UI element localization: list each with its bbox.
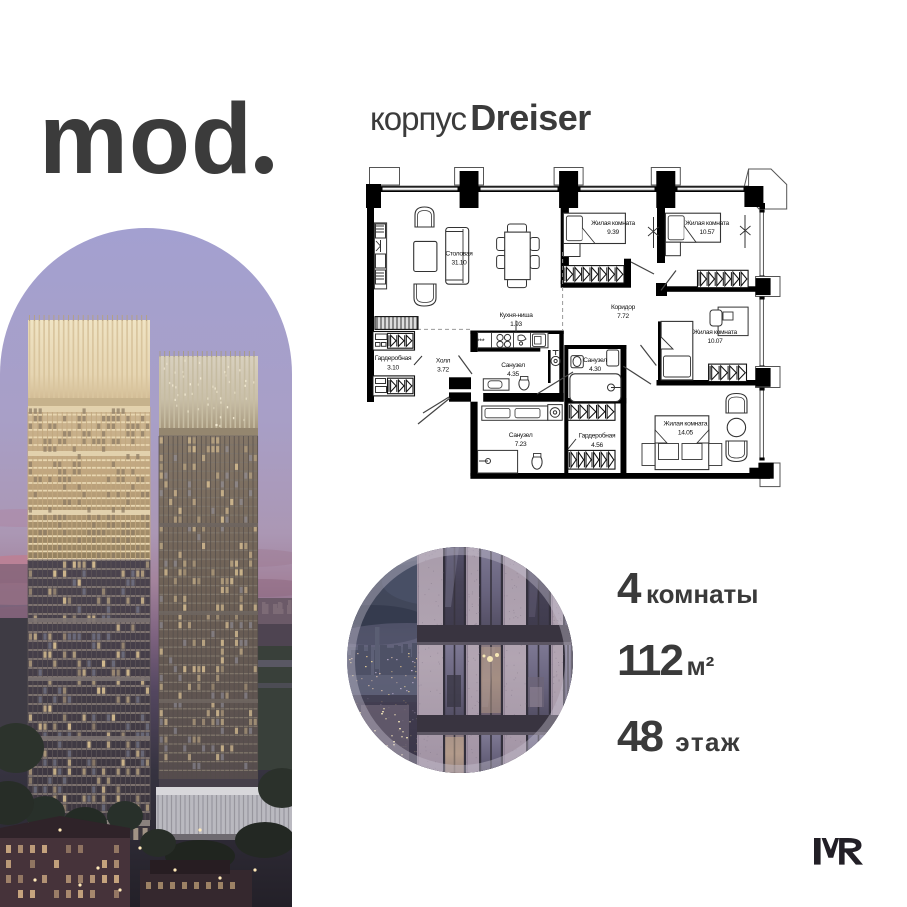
svg-text:Жилая комната: Жилая комната [664,421,708,428]
svg-text:Санузел: Санузел [509,432,533,439]
svg-text:Коридор: Коридор [611,304,636,311]
svg-text:***: *** [477,337,485,346]
svg-text:Жилая комната: Жилая комната [591,220,635,227]
svg-text:Кухня-ниша: Кухня-ниша [499,312,533,319]
svg-text:Санузел: Санузел [583,357,607,364]
svg-text:4.56: 4.56 [591,442,603,449]
svg-text:Гардеробная: Гардеробная [375,354,412,362]
svg-text:7.23: 7.23 [515,441,527,448]
svg-text:Столовая: Столовая [445,251,473,258]
svg-text:Гардеробная: Гардеробная [579,432,616,440]
svg-text:4.30: 4.30 [589,366,601,373]
svg-text:10.57: 10.57 [699,229,715,236]
svg-text:14.05: 14.05 [678,430,694,437]
svg-text:7.72: 7.72 [617,313,629,320]
svg-text:3.72: 3.72 [437,367,449,374]
svg-text:Холл: Холл [436,358,451,365]
svg-text:Жилая комната: Жилая комната [693,329,737,336]
svg-text:Жилая комната: Жилая комната [685,220,729,227]
svg-text:4.35: 4.35 [507,371,519,378]
svg-text:Санузел: Санузел [501,362,525,369]
svg-text:3.10: 3.10 [387,365,399,372]
svg-text:10.07: 10.07 [707,338,723,345]
svg-text:31.10: 31.10 [451,260,467,267]
svg-text:9.39: 9.39 [607,229,619,236]
